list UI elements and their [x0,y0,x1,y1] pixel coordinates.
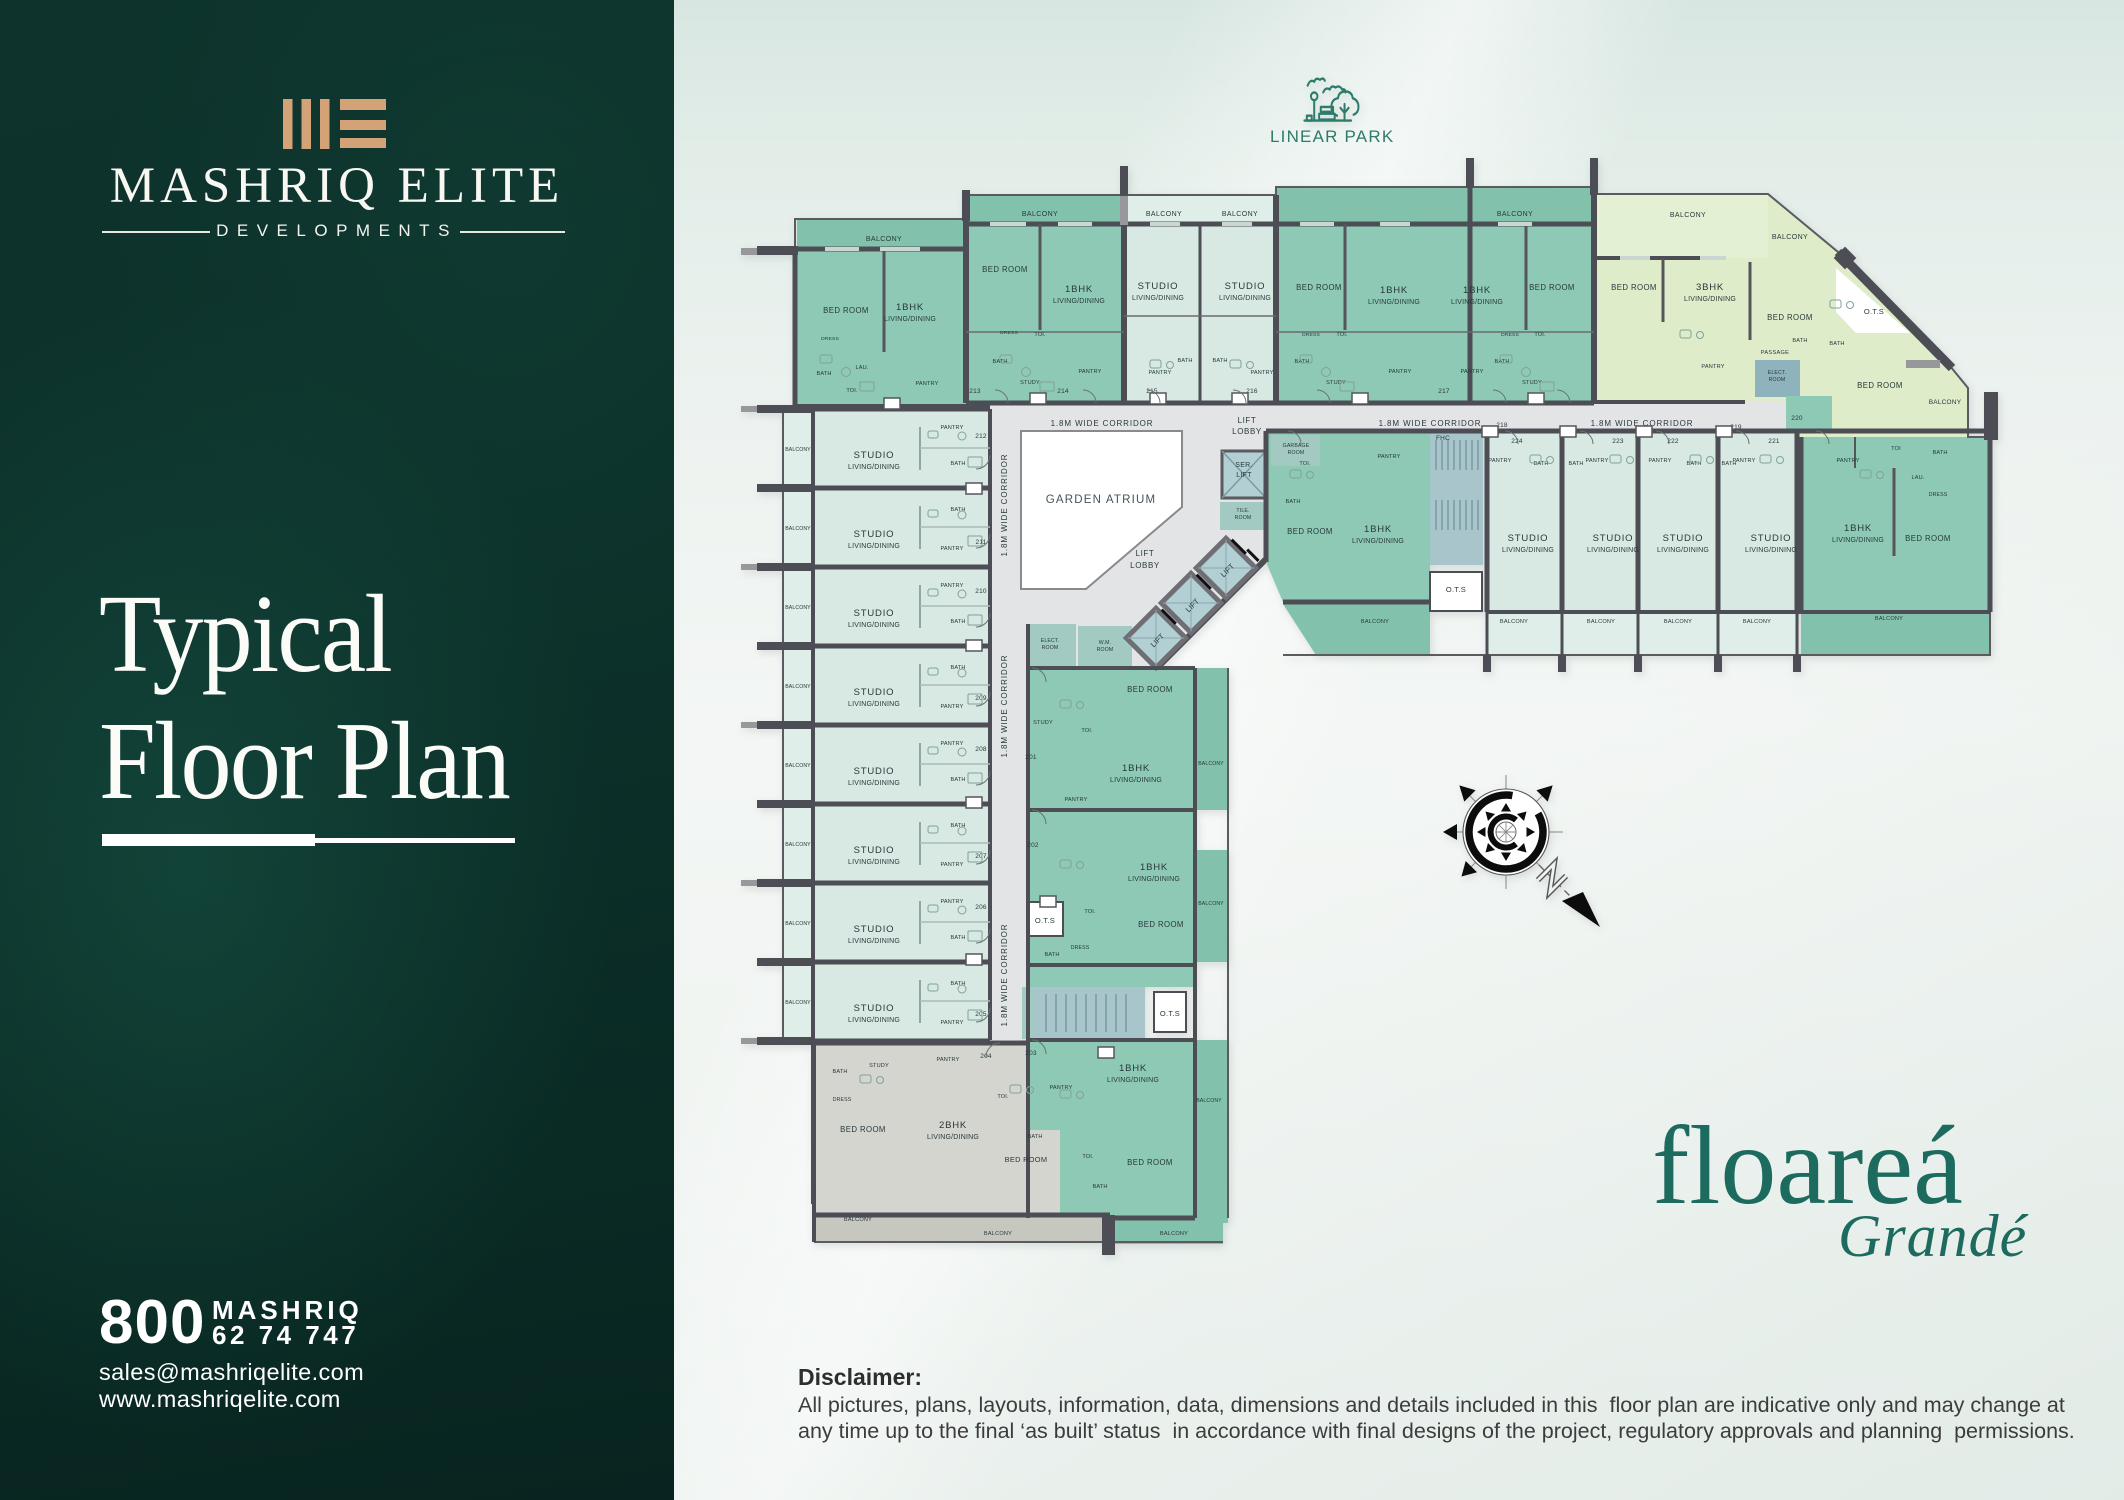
svg-text:BALCONY: BALCONY [1160,1231,1188,1237]
svg-text:LIVING/DINING: LIVING/DINING [1451,299,1503,306]
svg-text:LIVING/DINING: LIVING/DINING [1219,295,1271,302]
svg-text:STUDIO: STUDIO [1138,281,1179,292]
svg-text:LIVING/DINING: LIVING/DINING [848,780,900,787]
svg-text:BATH: BATH [1092,1184,1107,1190]
svg-text:PANTRY: PANTRY [1701,364,1724,370]
svg-text:BED ROOM: BED ROOM [1287,527,1333,536]
svg-text:1BHK: 1BHK [1364,524,1392,535]
svg-text:BALCONY: BALCONY [1664,619,1692,625]
svg-text:STUDY: STUDY [1522,380,1542,386]
svg-text:BALCONY: BALCONY [785,526,811,532]
svg-text:BATH: BATH [1932,450,1947,456]
svg-text:DRESS: DRESS [1929,492,1948,498]
svg-text:BED ROOM: BED ROOM [823,306,869,315]
svg-text:BALCONY: BALCONY [785,605,811,611]
svg-text:BALCONY: BALCONY [785,684,811,690]
svg-text:BED ROOM: BED ROOM [1857,381,1903,390]
svg-text:210: 210 [975,588,987,595]
svg-text:DRESS: DRESS [1501,332,1519,338]
svg-text:O.T.S: O.T.S [1035,916,1055,925]
svg-text:LOBBY: LOBBY [1130,561,1160,570]
svg-text:BED ROOM: BED ROOM [840,1125,886,1134]
svg-text:SER.: SER. [1235,462,1253,469]
svg-text:1BHK: 1BHK [1119,1063,1147,1074]
svg-text:TOI.: TOI. [1081,728,1093,734]
svg-text:STUDIO: STUDIO [1508,533,1549,544]
svg-text:PANTRY: PANTRY [940,899,963,905]
svg-text:BED ROOM: BED ROOM [1611,283,1657,292]
svg-text:1BHK: 1BHK [896,302,924,313]
svg-text:BED ROOM: BED ROOM [1529,283,1575,292]
svg-text:PANTRY: PANTRY [1732,458,1755,464]
svg-text:LIVING/DINING: LIVING/DINING [848,938,900,945]
svg-text:LIVING/DINING: LIVING/DINING [1368,299,1420,306]
svg-text:STUDIO: STUDIO [854,687,895,698]
svg-text:BATH: BATH [1686,461,1701,467]
svg-text:BALCONY: BALCONY [1196,1098,1222,1104]
svg-text:LIFT: LIFT [1238,416,1257,425]
svg-text:1BHK: 1BHK [1065,284,1093,295]
svg-text:BATH: BATH [950,665,965,671]
svg-text:PANTRY: PANTRY [940,741,963,747]
svg-text:TOI.: TOI. [1534,332,1546,338]
svg-text:BED ROOM: BED ROOM [1005,1155,1048,1164]
svg-text:STUDIO: STUDIO [854,608,895,619]
svg-text:STUDY: STUDY [869,1063,889,1069]
svg-text:205: 205 [975,1011,987,1018]
svg-text:BATH: BATH [1177,358,1192,364]
svg-text:PANTRY: PANTRY [940,546,963,552]
svg-text:PANTRY: PANTRY [915,381,938,387]
svg-text:PANTRY: PANTRY [1377,454,1400,460]
svg-text:1BHK: 1BHK [1463,285,1491,296]
svg-text:BATH: BATH [1212,358,1227,364]
svg-text:BATH: BATH [950,935,965,941]
svg-text:DRESS: DRESS [1071,945,1090,951]
svg-text:223: 223 [1612,438,1624,445]
svg-text:PANTRY: PANTRY [936,1057,959,1063]
svg-text:ROOM: ROOM [1235,515,1252,521]
svg-text:O.T.S: O.T.S [1864,307,1884,316]
svg-text:1.8M WIDE CORRIDOR: 1.8M WIDE CORRIDOR [1051,419,1154,428]
svg-text:PANTRY: PANTRY [1648,458,1671,464]
svg-text:1.8M WIDE CORRIDOR: 1.8M WIDE CORRIDOR [1000,454,1009,557]
svg-text:ROOM: ROOM [1769,377,1786,383]
svg-text:BALCONY: BALCONY [785,1000,811,1006]
svg-text:ROOM: ROOM [1288,450,1305,456]
svg-text:214: 214 [1057,388,1069,395]
svg-text:PANTRY: PANTRY [940,1020,963,1026]
svg-text:PANTRY: PANTRY [1488,458,1511,464]
svg-text:PANTRY: PANTRY [1250,370,1273,376]
svg-text:BALCONY: BALCONY [785,842,811,848]
svg-text:LIVING/DINING: LIVING/DINING [848,1017,900,1024]
svg-text:TOI.: TOI. [1082,1154,1094,1160]
svg-text:BALCONY: BALCONY [1146,211,1182,218]
svg-text:LIVING/DINING: LIVING/DINING [848,464,900,471]
svg-text:PANTRY: PANTRY [1836,458,1859,464]
svg-text:BATH: BATH [1044,952,1059,958]
svg-text:BALCONY: BALCONY [1670,212,1706,219]
svg-text:TOI.: TOI. [997,1094,1009,1100]
svg-text:PANTRY: PANTRY [940,704,963,710]
svg-text:LIVING/DINING: LIVING/DINING [1110,777,1162,784]
svg-text:STUDY: STUDY [1326,380,1346,386]
svg-text:1BHK: 1BHK [1844,523,1872,534]
svg-text:207: 207 [975,853,987,860]
svg-text:LIVING/DINING: LIVING/DINING [1107,1077,1159,1084]
svg-text:PASSAGE: PASSAGE [1761,350,1789,356]
svg-text:STUDIO: STUDIO [1751,533,1792,544]
svg-text:LIVING/DINING: LIVING/DINING [1128,876,1180,883]
svg-text:LIVING/DINING: LIVING/DINING [1132,295,1184,302]
svg-text:LIVING/DINING: LIVING/DINING [1053,298,1105,305]
svg-text:GARDEN ATRIUM: GARDEN ATRIUM [1046,494,1157,506]
svg-text:BATH: BATH [1568,461,1583,467]
svg-text:206: 206 [975,904,987,911]
svg-text:217: 217 [1438,388,1450,395]
svg-text:LIVING/DINING: LIVING/DINING [1684,296,1736,303]
svg-text:221: 221 [1768,438,1780,445]
svg-text:LAU.: LAU. [855,365,868,371]
svg-text:STUDY: STUDY [1020,380,1040,386]
svg-text:ELECT.: ELECT. [1041,638,1060,644]
svg-text:STUDIO: STUDIO [854,1003,895,1014]
svg-text:220: 220 [1791,415,1803,422]
svg-text:BALCONY: BALCONY [1198,901,1224,907]
svg-text:ELECT.: ELECT. [1768,370,1787,376]
svg-text:BALCONY: BALCONY [984,1231,1012,1237]
svg-text:BALCONY: BALCONY [1500,619,1528,625]
svg-text:BED ROOM: BED ROOM [1127,1158,1173,1167]
svg-text:LIVING/DINING: LIVING/DINING [927,1134,979,1141]
svg-text:1.8M WIDE CORRIDOR: 1.8M WIDE CORRIDOR [1000,655,1009,758]
svg-text:BALCONY: BALCONY [1772,234,1808,241]
svg-text:TOI.: TOI. [846,388,858,394]
svg-text:1.8M WIDE CORRIDOR: 1.8M WIDE CORRIDOR [1379,419,1482,428]
svg-text:PANTRY: PANTRY [1148,370,1171,376]
svg-text:LIVING/DINING: LIVING/DINING [884,316,936,323]
svg-text:2BHK: 2BHK [939,1120,967,1131]
svg-text:BATH: BATH [950,777,965,783]
svg-text:BATH: BATH [1792,338,1807,344]
svg-text:DRESS: DRESS [821,336,839,342]
svg-text:BATH: BATH [950,619,965,625]
svg-text:BALCONY: BALCONY [1198,761,1224,767]
svg-text:LOBBY: LOBBY [1232,427,1262,436]
svg-text:208: 208 [975,746,987,753]
svg-text:LIVING/DINING: LIVING/DINING [1352,538,1404,545]
svg-text:STUDIO: STUDIO [854,766,895,777]
svg-text:BATH: BATH [832,1069,847,1075]
svg-text:BATH: BATH [950,981,965,987]
svg-text:BALCONY: BALCONY [1022,211,1058,218]
svg-text:BATH: BATH [1027,1134,1042,1140]
svg-text:BED ROOM: BED ROOM [1296,283,1342,292]
svg-text:DRESS: DRESS [1000,330,1018,336]
svg-text:LIVING/DINING: LIVING/DINING [848,543,900,550]
svg-text:BATH: BATH [1829,341,1844,347]
svg-text:STUDIO: STUDIO [1663,533,1704,544]
svg-text:LIFT: LIFT [1236,472,1252,479]
svg-text:213: 213 [969,388,981,395]
svg-text:BATH: BATH [950,461,965,467]
svg-text:BED ROOM: BED ROOM [1905,534,1951,543]
svg-text:LIVING/DINING: LIVING/DINING [848,622,900,629]
svg-text:1BHK: 1BHK [1140,862,1168,873]
svg-text:203: 203 [1025,1050,1037,1057]
svg-text:O.T.S: O.T.S [1446,585,1466,594]
svg-text:BATH: BATH [950,507,965,513]
svg-text:212: 212 [975,433,987,440]
svg-text:BALCONY: BALCONY [785,447,811,453]
svg-text:BALCONY: BALCONY [1875,616,1903,622]
svg-text:ROOM: ROOM [1097,647,1114,653]
svg-text:BALCONY: BALCONY [785,763,811,769]
svg-text:DRESS: DRESS [833,1097,852,1103]
svg-text:LIVING/DINING: LIVING/DINING [1587,547,1639,554]
svg-text:PANTRY: PANTRY [1460,369,1483,375]
svg-text:1BHK: 1BHK [1122,763,1150,774]
svg-text:TOI: TOI [1891,446,1901,452]
svg-text:201: 201 [1025,754,1037,761]
svg-text:LIVING/DINING: LIVING/DINING [1502,547,1554,554]
svg-text:BED ROOM: BED ROOM [1767,313,1813,322]
svg-text:PANTRY: PANTRY [940,583,963,589]
svg-text:BED ROOM: BED ROOM [1138,920,1184,929]
svg-text:BALCONY: BALCONY [844,1217,872,1223]
svg-text:LAU.: LAU. [1911,475,1924,481]
svg-text:BALCONY: BALCONY [1587,619,1615,625]
svg-text:ROOM: ROOM [1042,645,1059,651]
svg-text:PANTRY: PANTRY [940,425,963,431]
svg-text:TOI.: TOI. [1299,461,1311,467]
svg-text:1.8M WIDE CORRIDOR: 1.8M WIDE CORRIDOR [1000,924,1009,1027]
svg-text:STUDIO: STUDIO [854,529,895,540]
svg-text:202: 202 [1027,842,1039,849]
svg-text:LIVING/DINING: LIVING/DINING [1657,547,1709,554]
svg-text:LIVING/DINING: LIVING/DINING [1832,537,1884,544]
svg-text:O.T.S: O.T.S [1160,1009,1180,1018]
svg-text:PANTRY: PANTRY [1064,797,1087,803]
svg-text:STUDY: STUDY [1033,720,1053,726]
svg-text:BALCONY: BALCONY [866,236,902,243]
svg-text:TOI.: TOI. [1084,909,1096,915]
svg-text:STUDIO: STUDIO [854,450,895,461]
svg-text:TOI.: TOI. [1034,332,1046,338]
svg-text:BALCONY: BALCONY [1361,619,1389,625]
svg-text:BALCONY: BALCONY [785,921,811,927]
svg-text:PANTRY: PANTRY [940,862,963,868]
svg-text:PANTRY: PANTRY [1388,369,1411,375]
svg-text:1BHK: 1BHK [1380,285,1408,296]
svg-text:GARBAGE: GARBAGE [1283,443,1310,449]
svg-text:BATH: BATH [1294,359,1309,365]
svg-text:PANTRY: PANTRY [1078,369,1101,375]
svg-text:BED ROOM: BED ROOM [982,265,1028,274]
svg-text:TOI.: TOI. [1336,332,1348,338]
svg-text:BATH: BATH [950,823,965,829]
svg-text:LIVING/DINING: LIVING/DINING [1745,547,1797,554]
svg-text:BATH: BATH [816,371,831,377]
svg-text:BALCONY: BALCONY [1929,399,1962,406]
svg-text:209: 209 [975,695,987,702]
svg-text:LIVING/DINING: LIVING/DINING [848,701,900,708]
svg-text:W.M.: W.M. [1099,640,1111,646]
svg-text:STUDIO: STUDIO [854,924,895,935]
svg-text:STUDIO: STUDIO [1593,533,1634,544]
svg-text:LIFT: LIFT [1136,549,1155,558]
svg-text:TILE.: TILE. [1236,508,1249,514]
svg-text:PANTRY: PANTRY [1585,458,1608,464]
svg-text:BATH: BATH [1285,499,1300,505]
svg-text:BED ROOM: BED ROOM [1127,685,1173,694]
svg-text:LIVING/DINING: LIVING/DINING [848,859,900,866]
svg-text:BALCONY: BALCONY [1222,211,1258,218]
svg-text:STUDIO: STUDIO [1225,281,1266,292]
svg-text:BATH: BATH [1494,359,1509,365]
svg-text:STUDIO: STUDIO [854,845,895,856]
svg-text:BALCONY: BALCONY [1743,619,1771,625]
svg-text:DRESS: DRESS [1302,332,1320,338]
svg-text:3BHK: 3BHK [1696,282,1724,293]
svg-text:BALCONY: BALCONY [1497,211,1533,218]
